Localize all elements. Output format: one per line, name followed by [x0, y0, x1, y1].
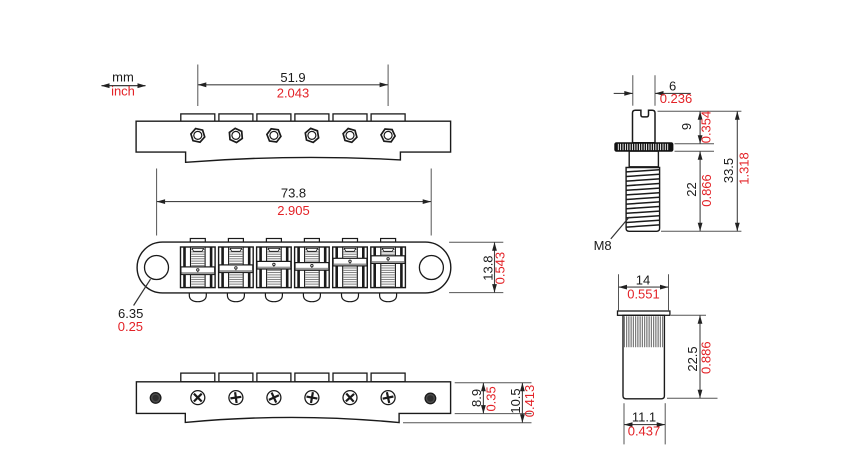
- svg-text:2.043: 2.043: [277, 86, 310, 101]
- svg-text:0.551: 0.551: [627, 286, 660, 301]
- svg-text:8.9: 8.9: [469, 389, 484, 407]
- svg-text:51.9: 51.9: [280, 70, 305, 85]
- svg-text:22: 22: [684, 182, 699, 196]
- svg-text:11.1: 11.1: [632, 409, 656, 424]
- svg-text:10.5: 10.5: [508, 388, 523, 413]
- svg-text:0.866: 0.866: [699, 174, 714, 207]
- svg-text:0.354: 0.354: [699, 111, 714, 144]
- svg-text:33.5: 33.5: [721, 158, 736, 183]
- svg-text:2.905: 2.905: [277, 203, 310, 218]
- svg-text:9: 9: [679, 123, 694, 130]
- svg-text:M8: M8: [594, 238, 612, 253]
- svg-text:mm: mm: [112, 70, 134, 85]
- svg-text:0.35: 0.35: [483, 386, 498, 411]
- svg-text:73.8: 73.8: [281, 185, 306, 200]
- svg-text:1.318: 1.318: [736, 152, 751, 185]
- svg-text:0.886: 0.886: [699, 341, 714, 374]
- svg-text:0.25: 0.25: [118, 319, 143, 334]
- svg-text:inch: inch: [111, 84, 135, 99]
- svg-text:0.413: 0.413: [522, 385, 537, 418]
- svg-text:14: 14: [636, 272, 650, 287]
- svg-text:0.543: 0.543: [493, 252, 508, 285]
- svg-text:0.437: 0.437: [628, 423, 661, 438]
- svg-text:0.236: 0.236: [660, 91, 693, 106]
